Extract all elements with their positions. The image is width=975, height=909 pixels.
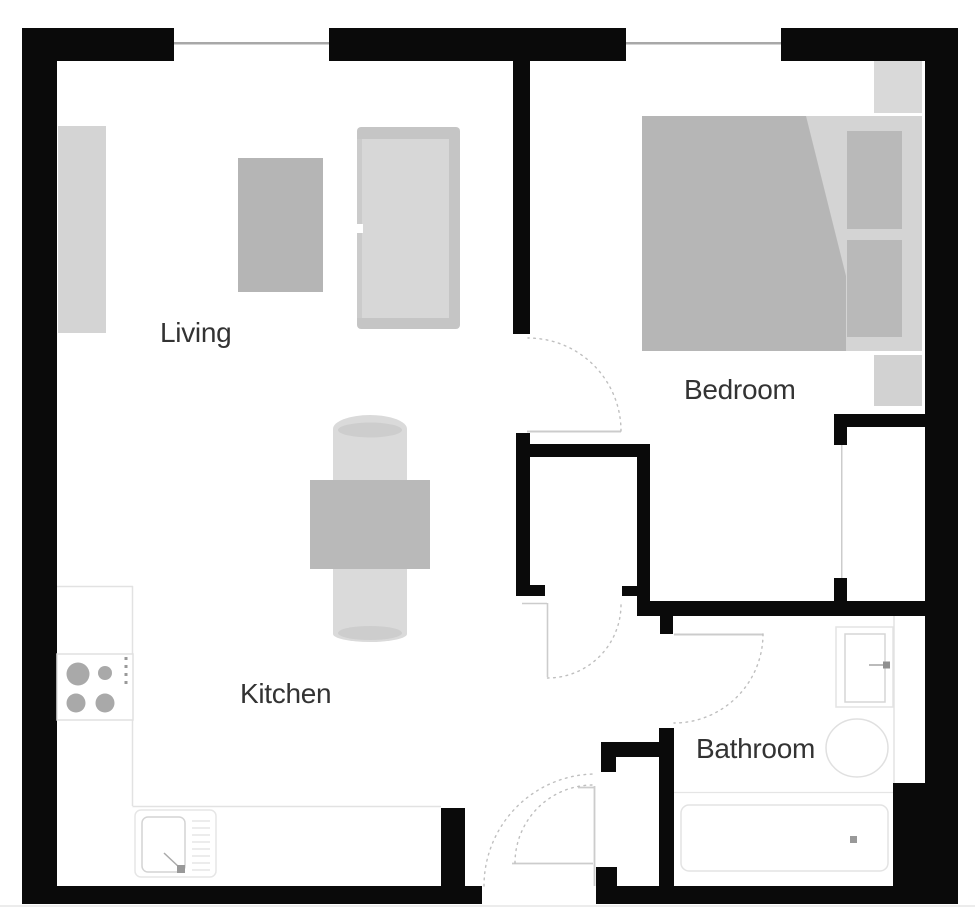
svg-text:Living: Living <box>160 317 231 348</box>
svg-text:Bathroom: Bathroom <box>696 733 815 764</box>
svg-text:Kitchen: Kitchen <box>240 678 331 709</box>
svg-text:Bedroom: Bedroom <box>684 374 796 405</box>
